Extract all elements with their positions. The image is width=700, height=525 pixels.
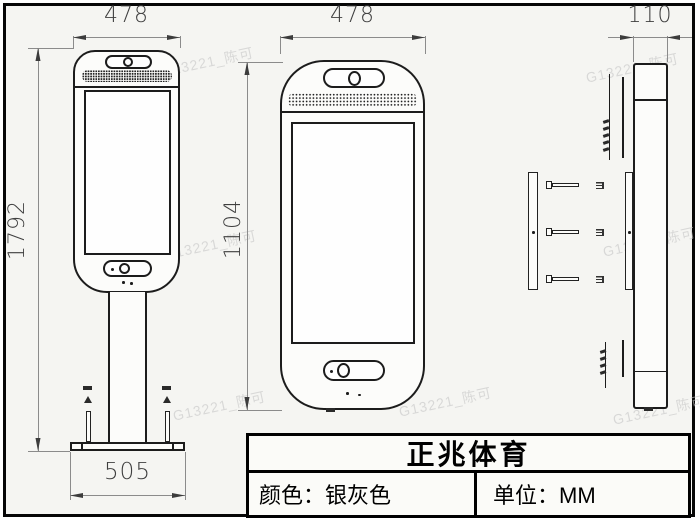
screw-strip-line xyxy=(609,74,610,160)
dimension-line xyxy=(70,495,185,496)
bezel-divider-line xyxy=(281,111,424,113)
display-screen xyxy=(84,90,171,255)
speaker-grille xyxy=(82,70,172,82)
back-cover-strip xyxy=(622,340,624,377)
led-dot xyxy=(330,370,333,373)
bracket-hole-dot xyxy=(628,231,631,234)
dim-base-width: 505 xyxy=(91,461,164,483)
title-block: 正兆体育 颜色：银灰色 单位：MM xyxy=(246,433,691,518)
bolt-shaft xyxy=(552,230,579,235)
display-screen xyxy=(291,122,415,344)
extension-line xyxy=(280,36,281,54)
extension-line xyxy=(28,48,74,49)
kiosk-side-body xyxy=(633,63,668,409)
bolt-shaft xyxy=(552,277,579,282)
extension-line xyxy=(238,62,283,63)
dimension-line xyxy=(280,37,425,38)
side-divider-line xyxy=(634,371,667,372)
small-screw-icon xyxy=(596,182,604,189)
mic-hole-dot xyxy=(358,394,361,397)
technical-drawing-page: G13221_陈可 G13221_陈可 G13221_陈可 G13221_陈可 … xyxy=(0,0,700,525)
dimension-line xyxy=(73,37,180,38)
anchor-bolt-head xyxy=(83,386,92,390)
back-cover-strip xyxy=(622,77,624,158)
title-block-color: 颜色：银灰色 xyxy=(249,473,477,515)
extension-line xyxy=(180,36,181,48)
extension-line xyxy=(28,451,70,452)
camera-lens-icon xyxy=(348,71,361,86)
extension-line xyxy=(425,36,426,54)
dimension-line xyxy=(38,48,39,451)
small-screw-icon xyxy=(596,276,604,283)
anchor-bolt-shaft xyxy=(165,411,170,442)
button-circle-icon xyxy=(119,263,130,274)
anchor-bolt-shaft xyxy=(86,411,91,442)
dim-head-height: 1104 xyxy=(223,173,245,285)
bottom-foot-nub xyxy=(644,407,653,411)
extension-line xyxy=(633,36,634,62)
bottom-foot-nub xyxy=(326,408,335,412)
mic-hole-dot xyxy=(130,282,133,285)
small-screw-icon xyxy=(596,229,604,236)
plate-hole-dot xyxy=(532,231,535,234)
dim-top-width-front-stand: 478 xyxy=(88,5,165,27)
dim-depth: 110 xyxy=(621,5,679,27)
title-block-unit: 单位：MM xyxy=(477,473,688,515)
button-circle-icon xyxy=(337,363,350,378)
stand-pole xyxy=(108,292,147,443)
mic-hole-dot xyxy=(122,281,125,284)
base-plate-notch xyxy=(172,443,174,450)
bolt-shaft xyxy=(552,183,579,188)
bezel-divider-line xyxy=(74,86,179,88)
dim-overall-height: 1792 xyxy=(7,174,29,286)
side-divider-line xyxy=(634,99,667,101)
camera-lens-icon xyxy=(123,57,133,67)
dim-head-width: 478 xyxy=(316,5,389,27)
dimension-line xyxy=(247,62,248,410)
title-block-company: 正兆体育 xyxy=(249,436,688,473)
anchor-bolt-head xyxy=(162,386,171,390)
extension-line xyxy=(73,36,74,48)
base-plate xyxy=(70,442,185,451)
extension-line xyxy=(667,36,668,62)
extension-line xyxy=(185,452,186,500)
led-dot xyxy=(111,268,114,271)
mic-hole-dot xyxy=(346,392,349,395)
extension-line xyxy=(238,410,282,411)
base-plate-notch xyxy=(81,443,83,450)
speaker-grille xyxy=(288,93,417,107)
extension-line xyxy=(70,452,71,500)
